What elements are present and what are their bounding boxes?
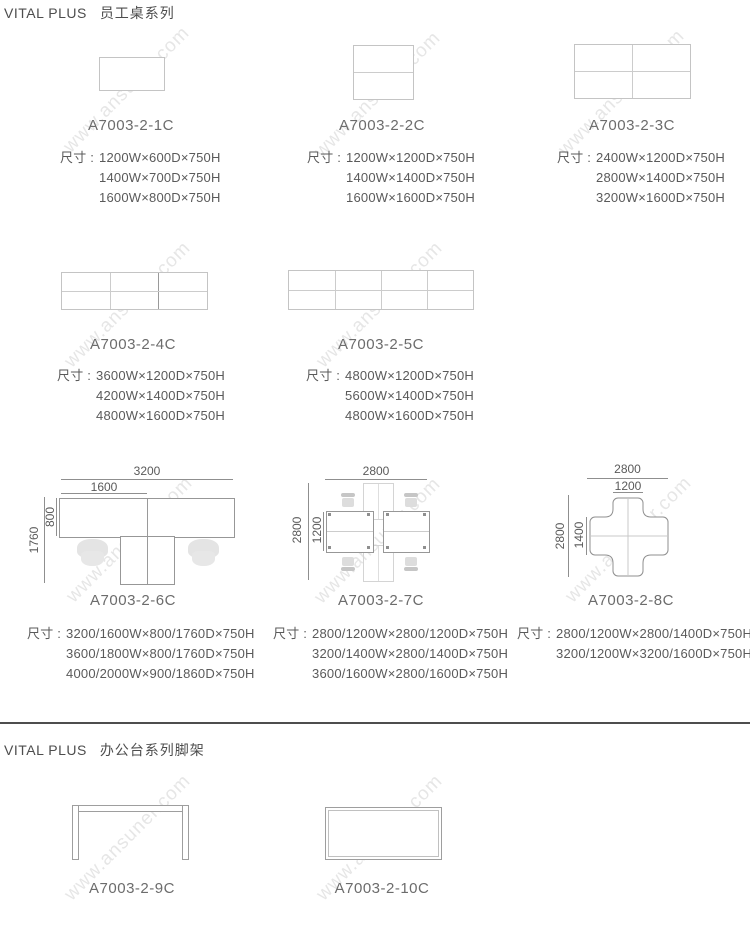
watermark: www.ansuner.com <box>312 770 447 905</box>
product-a7003-2-10c: A7003-2-10C <box>0 0 750 943</box>
desk-diagram-7c-right <box>383 511 430 553</box>
model-label: A7003-2-8C <box>561 592 701 609</box>
desk-divider-line <box>289 290 473 291</box>
dim-label: 尺寸 : <box>273 624 307 684</box>
dim-label: 尺寸 : <box>307 148 341 208</box>
desk-divider-line <box>147 537 148 584</box>
desk-divider-line <box>632 45 633 98</box>
dim-line-graphic <box>61 493 147 494</box>
dim-line-graphic <box>613 492 643 493</box>
dim-line-graphic <box>323 512 324 551</box>
watermark: www.ansuner.com <box>554 25 689 160</box>
series-name: 办公台系列脚架 <box>100 742 205 758</box>
dim-annotation-top-outer: 2800 <box>325 465 427 477</box>
dim-annotation-side-inner: 800 <box>44 507 56 527</box>
frame-top-bar <box>72 805 189 812</box>
desk-diagram-8c-cross <box>589 497 669 577</box>
desk-divider-line <box>381 271 382 309</box>
desk-divider-line <box>427 271 428 309</box>
desk-diagram-7c-top-ext <box>363 483 394 520</box>
desk-diagram-6c-stem <box>120 536 175 585</box>
dim-line: 2800/1200W×2800/1400D×750H <box>556 624 750 644</box>
watermark: www.ansuner.com <box>60 237 195 372</box>
dim-line-graphic <box>61 479 233 480</box>
dim-annotation-top-outer: 3200 <box>61 465 233 477</box>
model-label: A7003-2-1C <box>61 117 201 134</box>
model-label: A7003-2-10C <box>312 880 452 897</box>
dim-line: 1600W×1600D×750H <box>346 188 475 208</box>
desk-divider-line <box>378 484 379 519</box>
dim-line: 4800W×1200D×750H <box>345 366 474 386</box>
dim-line: 1200W×600D×750H <box>99 148 221 168</box>
desk-divider-line <box>378 546 379 581</box>
dim-annotation-top-outer: 2800 <box>587 463 668 475</box>
desk-diagram-6c-top <box>59 498 235 538</box>
model-label: A7003-2-7C <box>311 592 451 609</box>
dim-line: 2800W×1400D×750H <box>596 168 725 188</box>
dimensions: 尺寸 : 2800/1200W×2800/1200D×750H 3200/140… <box>273 624 508 684</box>
section1-title: VITAL PLUS员工桌系列 <box>4 3 175 23</box>
dim-annotation-side-outer: 2800 <box>291 517 303 544</box>
leg-dot <box>423 513 426 516</box>
dim-line-graphic <box>586 517 587 555</box>
model-label: A7003-2-4C <box>63 336 203 353</box>
leg-dot <box>328 513 331 516</box>
desk-divider-line <box>335 271 336 309</box>
dim-annotation-side-outer: 2800 <box>554 523 566 550</box>
desk-divider-line <box>62 291 207 292</box>
dim-annotation-top-inner: 1600 <box>61 481 147 493</box>
frame-inner <box>328 810 439 857</box>
frame-left-leg <box>72 805 79 860</box>
leg-dot <box>367 546 370 549</box>
dim-line: 4000/2000W×900/1860D×750H <box>66 664 255 684</box>
dim-label: 尺寸 : <box>27 624 61 684</box>
dim-line: 3200/1400W×2800/1400D×750H <box>312 644 508 664</box>
watermark: www.ansuner.com <box>60 770 195 905</box>
dim-line-graphic <box>587 478 668 479</box>
product-a7003-2-8c: 2800 1200 2800 1400 A7003-2-8C 尺寸 : 2800… <box>0 0 750 943</box>
desk-divider-line <box>354 72 413 73</box>
chair-icon <box>341 557 355 571</box>
watermark: www.ansuner.com <box>312 237 447 372</box>
dim-annotation-side-inner: 1400 <box>573 522 585 549</box>
leg-dot <box>328 546 331 549</box>
model-label: A7003-2-2C <box>312 117 452 134</box>
product-a7003-2-9c: A7003-2-9C <box>0 0 750 943</box>
dim-line: 3200/1600W×800/1760D×750H <box>66 624 255 644</box>
dimensions: 尺寸 : 1200W×600D×750H 1400W×700D×750H 160… <box>60 148 221 208</box>
desk-diagram-5c <box>288 270 474 310</box>
desk-diagram-7c-bottom-ext <box>363 545 394 582</box>
product-a7003-2-5c: A7003-2-5C 尺寸 : 4800W×1200D×750H 5600W×1… <box>0 0 750 943</box>
desk-diagram-3c <box>574 44 691 99</box>
dim-line: 4800W×1600D×750H <box>345 406 474 426</box>
leg-dot <box>386 546 389 549</box>
product-a7003-2-4c: A7003-2-4C 尺寸 : 3600W×1200D×750H 4200W×1… <box>0 0 750 943</box>
desk-divider-line <box>158 273 159 309</box>
desk-divider-line <box>110 273 111 309</box>
dim-line-graphic <box>568 495 569 577</box>
watermark: www.ansuner.com <box>561 472 696 607</box>
model-label: A7003-2-3C <box>562 117 702 134</box>
product-a7003-2-6c: 3200 1600 1760 800 A7003-2-6C 尺寸 : 3200/… <box>0 0 750 943</box>
chair-icon <box>404 557 418 571</box>
product-a7003-2-2c: A7003-2-2C 尺寸 : 1200W×1200D×750H 1400W×1… <box>0 0 750 943</box>
dim-label: 尺寸 : <box>60 148 94 208</box>
desk-diagram-7c-left <box>326 511 374 553</box>
desk-divider-line <box>575 71 690 72</box>
dim-label: 尺寸 : <box>306 366 340 426</box>
desk-diagram-2c <box>353 45 414 100</box>
dim-line: 4200W×1400D×750H <box>96 386 225 406</box>
frame-right-leg <box>182 805 189 860</box>
product-a7003-2-7c: 2800 2800 1200 A7003-2-7C 尺寸 : <box>0 0 750 943</box>
dimensions: 尺寸 : 3600W×1200D×750H 4200W×1400D×750H 4… <box>57 366 225 426</box>
chair-icon <box>77 539 108 567</box>
desk-diagram-4c <box>61 272 208 310</box>
product-a7003-2-3c: A7003-2-3C 尺寸 : 2400W×1200D×750H 2800W×1… <box>0 0 750 943</box>
desk-divider-line <box>384 531 429 532</box>
model-label: A7003-2-6C <box>63 592 203 609</box>
dim-label: 尺寸 : <box>517 624 551 664</box>
desk-divider-line <box>327 531 373 532</box>
dim-line: 2400W×1200D×750H <box>596 148 725 168</box>
dim-annotation-top-inner: 1200 <box>598 480 658 492</box>
leg-dot <box>423 546 426 549</box>
desk-divider-line <box>147 499 148 537</box>
dim-line: 1200W×1200D×750H <box>346 148 475 168</box>
watermark: www.ansuner.com <box>310 473 445 608</box>
watermark: www.ansuner.com <box>310 27 445 162</box>
dimensions: 尺寸 : 2400W×1200D×750H 2800W×1400D×750H 3… <box>557 148 725 208</box>
dim-label: 尺寸 : <box>557 148 591 208</box>
chair-icon <box>341 493 355 507</box>
dim-line: 5600W×1400D×750H <box>345 386 474 406</box>
dimensions: 尺寸 : 1200W×1200D×750H 1400W×1400D×750H 1… <box>307 148 475 208</box>
dim-line-graphic <box>56 498 57 536</box>
dim-line: 3600W×1200D×750H <box>96 366 225 386</box>
dimensions: 尺寸 : 3200/1600W×800/1760D×750H 3600/1800… <box>27 624 255 684</box>
dim-line: 3600/1600W×2800/1600D×750H <box>312 664 508 684</box>
brand-text: VITAL PLUS <box>4 5 87 21</box>
dim-line-graphic <box>325 479 427 480</box>
dim-line: 1400W×700D×750H <box>99 168 221 188</box>
chair-icon <box>404 493 418 507</box>
watermark: www.ansuner.com <box>59 22 194 157</box>
catalog-page: www.ansuner.com www.ansuner.com www.ansu… <box>0 0 750 943</box>
dim-annotation-side-outer: 1760 <box>28 527 40 554</box>
dim-line-graphic <box>308 483 309 580</box>
dim-line: 3600/1800W×800/1760D×750H <box>66 644 255 664</box>
watermark: www.ansuner.com <box>62 472 197 607</box>
dim-line: 3200/1200W×3200/1600D×750H <box>556 644 750 664</box>
dimensions: 尺寸 : 2800/1200W×2800/1400D×750H 3200/120… <box>517 624 750 664</box>
chair-icon <box>188 539 219 567</box>
leg-dot <box>367 513 370 516</box>
dim-line: 3200W×1600D×750H <box>596 188 725 208</box>
desk-diagram-1c <box>99 57 165 91</box>
dim-annotation-side-inner: 1200 <box>311 517 323 544</box>
dim-line-graphic <box>44 497 45 583</box>
product-a7003-2-1c: A7003-2-1C 尺寸 : 1200W×600D×750H 1400W×70… <box>0 0 750 943</box>
section2-title: VITAL PLUS办公台系列脚架 <box>4 740 205 760</box>
dim-line: 1400W×1400D×750H <box>346 168 475 188</box>
dimensions: 尺寸 : 4800W×1200D×750H 5600W×1400D×750H 4… <box>306 366 474 426</box>
dim-label: 尺寸 : <box>57 366 91 426</box>
dim-line: 4800W×1600D×750H <box>96 406 225 426</box>
model-label: A7003-2-5C <box>311 336 451 353</box>
brand-text: VITAL PLUS <box>4 742 87 758</box>
section-divider <box>0 722 750 724</box>
frame-outer <box>325 807 442 860</box>
dim-line: 2800/1200W×2800/1200D×750H <box>312 624 508 644</box>
model-label: A7003-2-9C <box>62 880 202 897</box>
leg-dot <box>386 513 389 516</box>
series-name: 员工桌系列 <box>100 5 175 21</box>
dim-line: 1600W×800D×750H <box>99 188 221 208</box>
